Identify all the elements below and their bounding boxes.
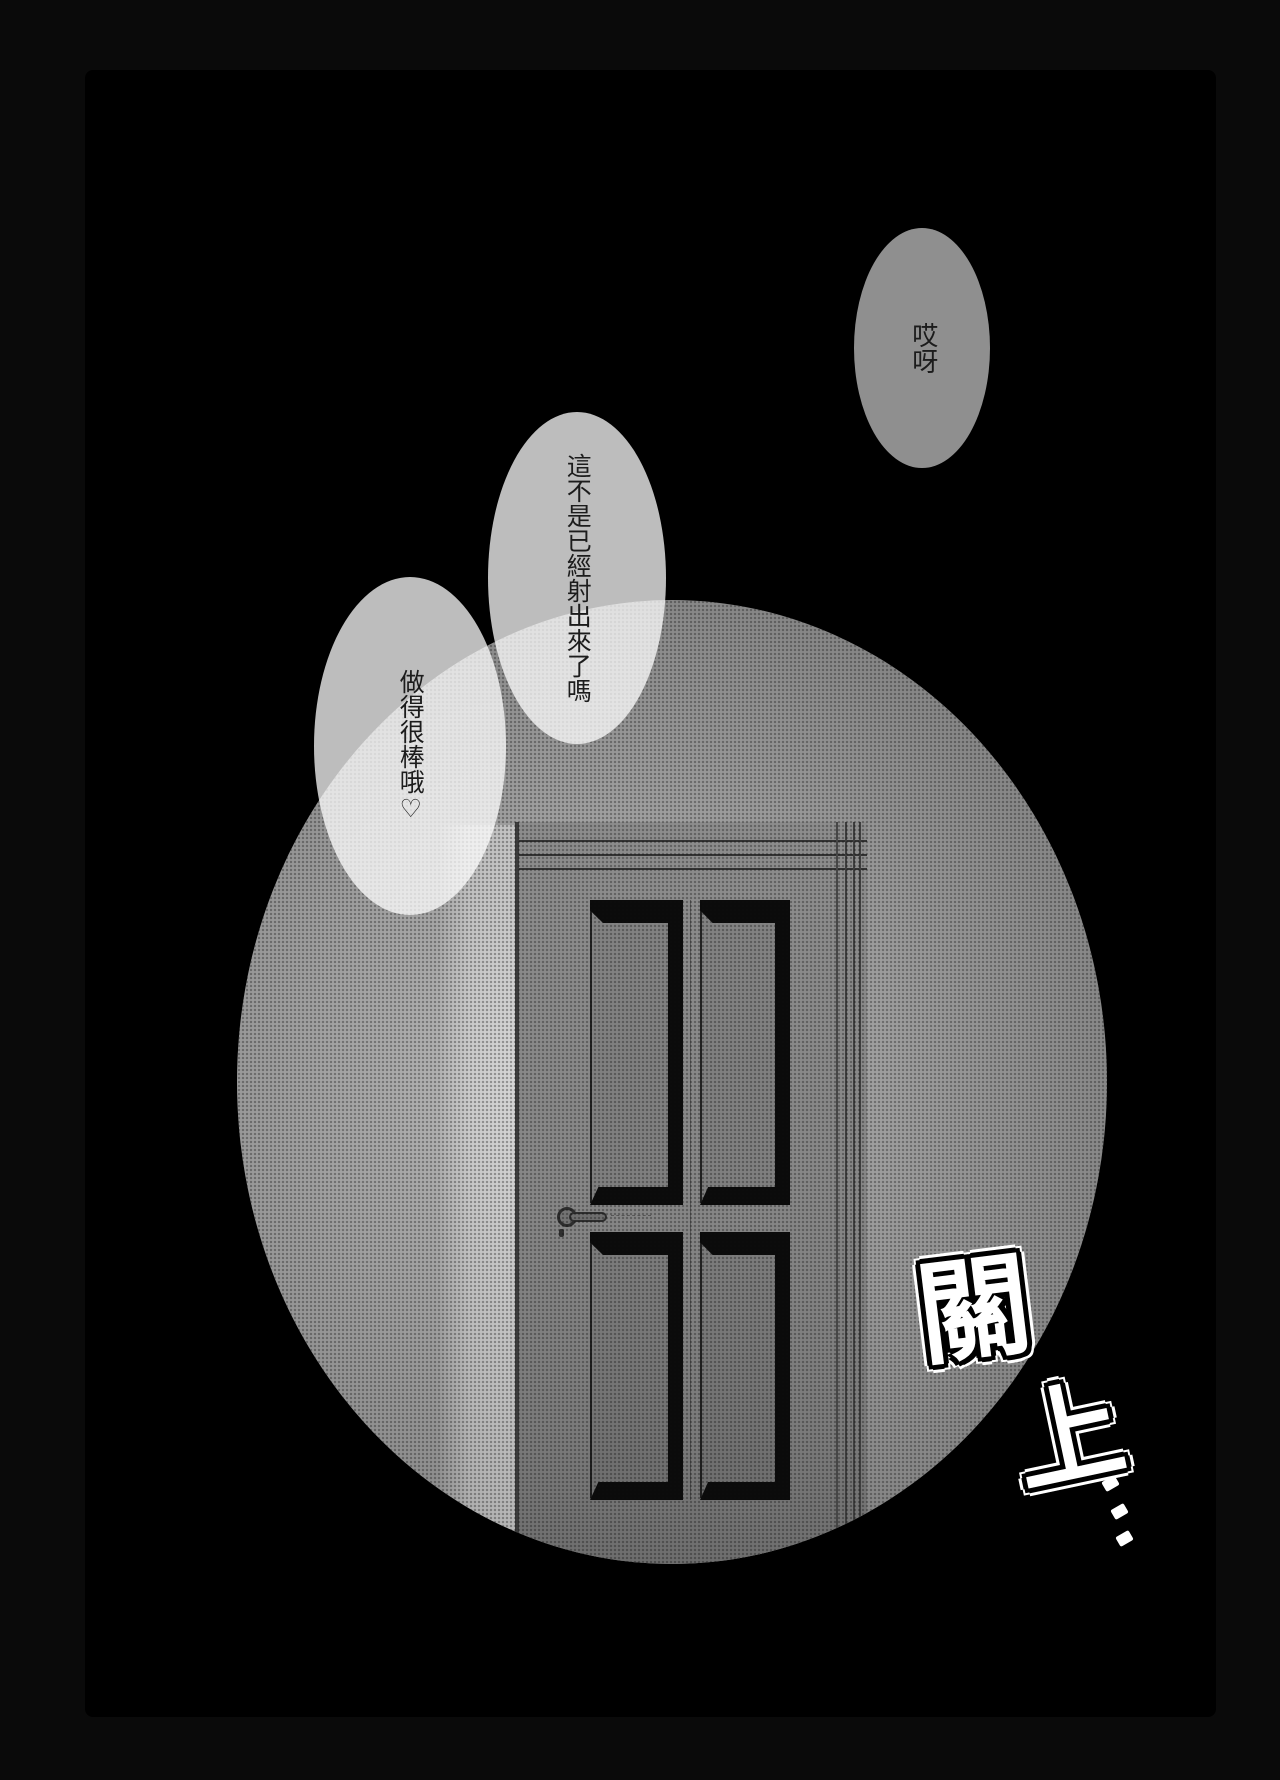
door-frame-line <box>845 822 847 1564</box>
panel-bevel-left <box>590 902 592 1203</box>
door-frame-line <box>853 822 855 1564</box>
speech-bubble-1: 哎呀 <box>854 228 990 468</box>
door-lintel-molding-line <box>519 840 867 842</box>
panel-bevel-right <box>775 1242 790 1492</box>
sfx-dot <box>1110 1503 1128 1520</box>
manga-panel: 哎呀 這不是已經射出來了嗎 做得很棒哦♡ 關 上 <box>85 70 1216 1717</box>
door-handle-shadow-line <box>611 1215 651 1216</box>
door-center-stile-line <box>690 900 691 1500</box>
speech-bubble-3-text: 做得很棒哦♡ <box>397 669 424 823</box>
speech-bubble-1-text: 哎呀 <box>908 322 936 374</box>
sfx-dot <box>1115 1530 1133 1547</box>
page-background: 哎呀 這不是已經射出來了嗎 做得很棒哦♡ 關 上 <box>0 0 1280 1780</box>
panel-bevel-right <box>668 1242 683 1492</box>
sfx-ellipsis <box>1097 1472 1157 1562</box>
speech-bubble-2: 這不是已經射出來了嗎 <box>488 412 666 744</box>
panel-bevel-left <box>590 1234 592 1498</box>
panel-bevel-bottom <box>700 1482 790 1500</box>
panel-bevel-left <box>700 1234 702 1498</box>
panel-bevel-right <box>775 910 790 1197</box>
door-lintel-molding-line <box>519 868 867 870</box>
door-panel-upper-left <box>590 900 683 1205</box>
door-handle-lever <box>569 1212 607 1222</box>
door-panel-lower-right <box>700 1232 790 1500</box>
wall-light-strip <box>437 825 517 1564</box>
panel-bevel-bottom <box>700 1187 790 1205</box>
panel-bevel-bottom <box>590 1187 683 1205</box>
door-frame-line <box>859 822 861 1564</box>
door-right-stile-line <box>836 822 838 1564</box>
door-panel-upper-right <box>700 900 790 1205</box>
panel-bevel-left <box>700 902 702 1203</box>
panel-bevel-bottom <box>590 1482 683 1500</box>
door-panel-lower-left <box>590 1232 683 1500</box>
door <box>519 822 867 1564</box>
sfx-dot <box>1101 1475 1119 1492</box>
door-lintel-molding-line <box>519 854 867 856</box>
door-keyhole <box>559 1229 564 1237</box>
speech-bubble-3: 做得很棒哦♡ <box>314 577 506 915</box>
speech-bubble-2-text: 這不是已經射出來了嗎 <box>564 453 591 703</box>
panel-bevel-right <box>668 910 683 1197</box>
